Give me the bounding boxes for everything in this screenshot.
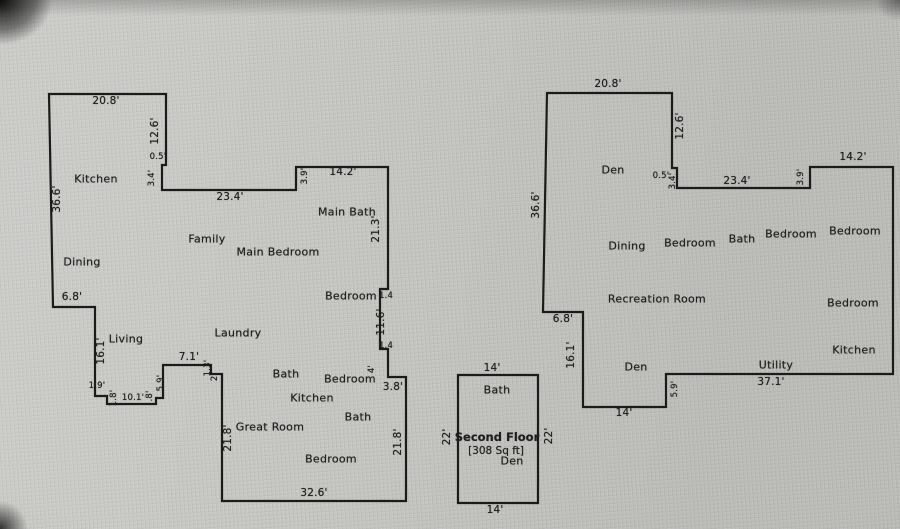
room-label: Bedroom — [325, 290, 377, 303]
room-label: Family — [188, 233, 225, 246]
room-label: Bath — [729, 233, 756, 246]
room-label: Den — [624, 361, 647, 374]
dim-label: 21.8' — [392, 428, 404, 455]
dim-label: 0.5' — [653, 171, 670, 181]
room-label: Bath — [273, 368, 300, 381]
dim-label: 10.1' — [122, 393, 144, 403]
room-label: Main Bedroom — [236, 246, 319, 259]
dim-label: 3.9' — [300, 168, 310, 185]
dim-label: 1.9' — [89, 381, 106, 391]
dim-label: 0.5' — [150, 152, 167, 162]
room-label: Bath — [484, 384, 511, 397]
dim-label: 14' — [487, 504, 504, 516]
room-label: Bedroom — [827, 297, 879, 310]
dim-label: 20.8' — [594, 78, 621, 90]
dim-label: 12.6' — [674, 112, 686, 139]
dim-label: 5.9' — [156, 375, 166, 392]
room-label: Kitchen — [290, 392, 333, 405]
floorplan-drawing — [0, 0, 900, 529]
dim-label: 16.1' — [565, 341, 577, 368]
room-label: Bedroom — [765, 228, 817, 241]
floorplan-photo: 20.8' 12.6' 0.5' 3.4' 36.6' 23.4' 3.9' 1… — [0, 0, 900, 529]
room-label: Kitchen — [74, 173, 117, 186]
dim-label: 6.8' — [553, 313, 573, 325]
dim-label: 1.4 — [379, 341, 393, 351]
dim-label: 6.8' — [62, 291, 82, 303]
dim-label: 16.1' — [95, 337, 107, 364]
dim-label: 12.6' — [149, 117, 161, 144]
room-label: Bath — [345, 411, 372, 424]
dim-label: 20.8' — [92, 95, 119, 107]
room-label: Recreation Room — [608, 293, 706, 306]
dim-label: 11.6' — [375, 308, 387, 335]
dim-label: 3.4' — [147, 170, 157, 187]
dim-label: 7.1' — [179, 351, 199, 363]
dim-label: 3.9' — [796, 169, 806, 186]
room-label: Dining — [608, 240, 645, 253]
dim-label: 1.4 — [379, 291, 393, 301]
room-label: Main Bath — [318, 206, 376, 219]
dim-label: 14' — [484, 362, 501, 374]
dim-label: 37.1' — [757, 376, 784, 388]
dim-label: 36.6' — [51, 185, 63, 212]
dim-label: 1.8' — [109, 390, 119, 407]
room-label: Den — [601, 164, 624, 177]
dim-label: 3.4' — [668, 173, 678, 190]
second-floor-title: Second Floor — [455, 430, 540, 444]
dim-label: 5.9' — [670, 381, 680, 398]
room-label: Bedroom — [664, 237, 716, 250]
room-label: Bedroom — [324, 373, 376, 386]
dim-label: 32.6' — [300, 487, 327, 499]
dim-label: 23.4' — [723, 175, 750, 187]
dim-label: 14.2' — [329, 166, 356, 178]
dim-label: 22' — [441, 429, 453, 446]
room-label: Dining — [63, 256, 100, 269]
dim-label: 2' — [210, 373, 220, 381]
room-label: Laundry — [215, 327, 262, 340]
basement-outline — [543, 93, 893, 407]
room-label: Great Room — [236, 421, 304, 434]
dim-label: 21.3' — [370, 215, 382, 242]
room-label: Kitchen — [832, 344, 875, 357]
dim-label: 36.6' — [530, 191, 542, 218]
room-label: Bedroom — [305, 453, 357, 466]
dim-label: 21.8' — [222, 424, 234, 451]
room-label: Bedroom — [829, 225, 881, 238]
dim-label: 14.2' — [839, 151, 866, 163]
room-label: Utility — [759, 359, 793, 372]
dim-label: 22' — [543, 428, 555, 445]
dim-label: 3.8' — [383, 381, 403, 393]
dim-label: 23.4' — [216, 191, 243, 203]
room-label: Living — [109, 333, 144, 346]
room-label: Den — [500, 455, 523, 468]
dim-label: 14' — [616, 407, 633, 419]
dim-label: .8' — [145, 390, 155, 401]
